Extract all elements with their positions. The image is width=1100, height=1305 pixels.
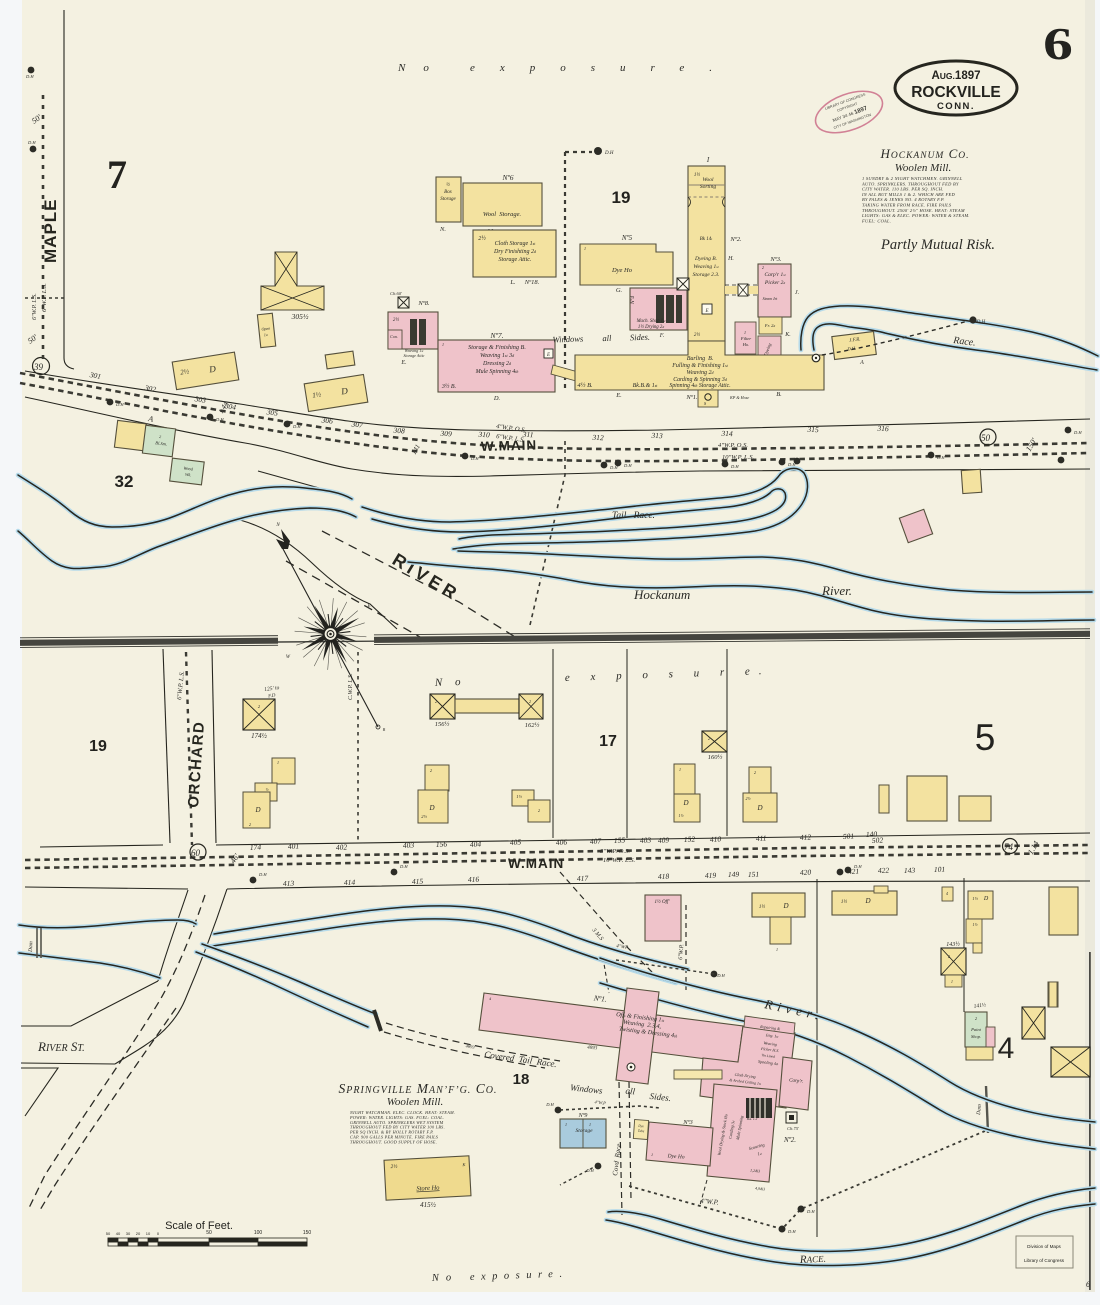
svg-text:D: D <box>682 799 688 807</box>
svg-text:Storage Attic: Storage Attic <box>404 353 425 358</box>
svg-text:3½ B.: 3½ B. <box>441 383 456 390</box>
svg-text:Storage: Storage <box>575 1128 593 1134</box>
svg-text:E: E <box>704 309 708 314</box>
svg-text:Box: Box <box>444 190 453 195</box>
svg-text:2½: 2½ <box>478 235 486 242</box>
svg-text:156½: 156½ <box>435 721 450 728</box>
svg-text:2½: 2½ <box>746 796 751 801</box>
svg-text:E: E <box>546 353 550 358</box>
svg-text:exposure.: exposure. <box>470 62 737 74</box>
svg-text:306: 306 <box>320 415 334 425</box>
svg-text:Nº8.: Nº8. <box>417 300 430 307</box>
svg-text:74: 74 <box>1004 842 1014 852</box>
svg-text:River.: River. <box>821 583 852 598</box>
svg-text:18: 18 <box>513 1071 530 1088</box>
svg-text:Nº6: Nº6 <box>501 173 513 182</box>
svg-text:TAKING WATER FROM RACE. FIRE P: TAKING WATER FROM RACE. FIRE PAILS <box>862 203 952 208</box>
svg-text:D: D <box>782 902 788 910</box>
svg-text:313: 313 <box>650 431 663 440</box>
svg-text:4"W.P. O.S.: 4"W.P. O.S. <box>718 442 748 449</box>
svg-text:Nº1.: Nº1. <box>592 993 607 1004</box>
svg-text:309: 309 <box>439 429 452 439</box>
svg-text:THROUGHOUT. 2500' 2½" HOSE. HE: THROUGHOUT. 2500' 2½" HOSE. HEAT: STEAM <box>862 208 965 213</box>
svg-text:BA. 1.2: BA. 1.2 <box>747 1117 758 1121</box>
svg-text:10: 10 <box>146 1231 151 1236</box>
svg-text:5: 5 <box>975 717 996 758</box>
svg-text:316: 316 <box>876 424 889 433</box>
svg-text:G.: G. <box>616 287 623 294</box>
svg-text:all: all <box>602 333 612 343</box>
svg-text:Spinning 4th Storage Attic.: Spinning 4th Storage Attic. <box>669 382 730 389</box>
svg-text:Picker 2d: Picker 2d <box>764 280 785 286</box>
svg-text:Nº5: Nº5 <box>621 234 633 242</box>
svg-text:50: 50 <box>106 1231 111 1236</box>
svg-text:D.H: D.H <box>545 1102 554 1107</box>
svg-text:D.H: D.H <box>936 455 945 460</box>
svg-text:418: 418 <box>658 872 670 881</box>
svg-text:D.H: D.H <box>853 864 862 869</box>
svg-text:Storage: Storage <box>440 197 456 202</box>
svg-text:B.: B. <box>776 391 782 398</box>
svg-text:2: 2 <box>538 808 540 813</box>
svg-text:Burling B.: Burling B. <box>687 356 714 362</box>
svg-text:4: 4 <box>998 1032 1015 1065</box>
svg-text:Steam Jet: Steam Jet <box>763 297 779 301</box>
svg-text:Wool: Wool <box>702 177 714 183</box>
svg-text:Woolen Mill.: Woolen Mill. <box>387 1096 443 1108</box>
svg-text:1½: 1½ <box>516 794 522 799</box>
svg-text:416: 416 <box>468 875 480 884</box>
svg-text:156: 156 <box>436 839 448 849</box>
svg-text:E.: E. <box>615 392 622 399</box>
svg-text:D.H: D.H <box>716 973 725 978</box>
svg-text:Bk.B.& 1st: Bk.B.& 1st <box>633 383 659 389</box>
svg-text:E.: E. <box>400 360 406 366</box>
svg-text:10"W.P. L.S.: 10"W.P. L.S. <box>722 454 755 461</box>
svg-text:Fr. 2d: Fr. 2d <box>764 323 776 328</box>
svg-text:Woolen Mill.: Woolen Mill. <box>895 162 951 174</box>
svg-text:Nº9: Nº9 <box>578 1113 588 1119</box>
svg-text:D.H: D.H <box>806 1209 815 1214</box>
svg-text:2: 2 <box>430 768 432 773</box>
svg-text:2: 2 <box>529 699 531 704</box>
svg-text:D: D <box>864 897 870 905</box>
svg-text:D.H: D.H <box>25 74 34 79</box>
svg-text:413: 413 <box>283 879 295 888</box>
svg-text:1: 1 <box>679 767 681 772</box>
svg-text:4½ B.: 4½ B. <box>577 382 593 389</box>
svg-text:412: 412 <box>800 832 812 842</box>
svg-text:D.H: D.H <box>115 402 124 407</box>
svg-text:D.H: D.H <box>470 456 479 461</box>
svg-text:CONN.: CONN. <box>937 101 975 112</box>
svg-text:Windows: Windows <box>552 333 584 344</box>
svg-text:Mach. Shop 1st: Mach. Shop 1st <box>636 319 667 324</box>
svg-text:Paint: Paint <box>970 1027 981 1032</box>
svg-text:Nº7.: Nº7. <box>490 331 504 340</box>
svg-text:Storage 2.3.: Storage 2.3. <box>693 272 720 278</box>
svg-text:2: 2 <box>948 954 950 959</box>
svg-text:D.H: D.H <box>215 417 224 422</box>
svg-text:100: 100 <box>254 1230 263 1236</box>
svg-text:J.: J. <box>795 290 799 296</box>
svg-text:1: 1 <box>584 246 586 251</box>
svg-text:143½: 143½ <box>946 941 960 948</box>
svg-text:1 SUNDRY & 2 NIGHT WATCHMEN. G: 1 SUNDRY & 2 NIGHT WATCHMEN. GRINNELL <box>862 176 963 181</box>
svg-text:Nº2.: Nº2. <box>783 1136 796 1144</box>
svg-text:D.H: D.H <box>1073 430 1082 435</box>
svg-text:Nº3: Nº3 <box>682 1119 693 1126</box>
svg-text:N: N <box>275 523 280 528</box>
svg-text:39: 39 <box>33 362 44 372</box>
svg-text:2: 2 <box>975 1016 977 1021</box>
svg-text:No: No <box>397 62 447 74</box>
svg-text:405: 405 <box>510 837 522 847</box>
svg-text:CITY WATER. 110 LBS. PER SQ. I: CITY WATER. 110 LBS. PER SQ. INCH. <box>862 187 944 192</box>
svg-text:D.: D. <box>493 395 501 402</box>
svg-text:415: 415 <box>412 877 424 886</box>
svg-text:N.: N. <box>439 226 446 233</box>
svg-text:Library of Congress: Library of Congress <box>1024 1258 1065 1263</box>
svg-text:420: 420 <box>800 868 812 877</box>
svg-text:Bk 14t: Bk 14t <box>700 237 714 242</box>
svg-text:1st: 1st <box>264 332 269 337</box>
svg-text:305½: 305½ <box>291 312 309 321</box>
svg-text:406: 406 <box>556 837 568 847</box>
svg-text:H.: H. <box>727 256 734 262</box>
svg-text:402: 402 <box>336 842 348 852</box>
svg-text:305: 305 <box>265 407 279 418</box>
svg-text:1½: 1½ <box>759 905 766 910</box>
svg-text:32: 32 <box>115 472 134 491</box>
svg-text:D.H: D.H <box>292 424 301 429</box>
svg-text:403: 403 <box>403 840 415 850</box>
svg-text:D: D <box>428 804 434 812</box>
svg-text:2: 2 <box>249 822 251 827</box>
svg-text:409: 409 <box>658 835 670 845</box>
svg-text:314: 314 <box>720 429 733 438</box>
svg-text:Weaving 1st: Weaving 1st <box>693 264 719 270</box>
svg-text:411: 411 <box>756 833 767 843</box>
svg-text:40: 40 <box>116 1231 121 1236</box>
svg-text:Tubs: Tubs <box>638 1129 645 1133</box>
svg-text:LIGHTS: GAS & ELEC. POWER: WAT: LIGHTS: GAS & ELEC. POWER: WATER & STEAM… <box>861 213 970 218</box>
svg-text:414: 414 <box>344 878 356 887</box>
svg-text:310: 310 <box>477 430 490 440</box>
svg-text:30: 30 <box>126 1231 131 1236</box>
svg-text:Filter: Filter <box>740 336 751 341</box>
svg-text:Dye Ho: Dye Ho <box>611 267 633 274</box>
svg-text:50: 50 <box>206 1230 212 1236</box>
svg-text:D.H: D.H <box>976 320 986 325</box>
svg-text:1½: 1½ <box>973 922 978 927</box>
svg-text:502: 502 <box>872 835 884 845</box>
svg-text:Con.: Con. <box>390 334 398 339</box>
svg-text:10"W.P. L.S.: 10"W.P. L.S. <box>603 857 636 864</box>
svg-text:Store Ho: Store Ho <box>416 1184 440 1192</box>
svg-text:D: D <box>983 896 989 902</box>
svg-text:D.H: D.H <box>258 872 267 877</box>
svg-text:8"W.P. O.S.: 8"W.P. O.S. <box>600 848 630 855</box>
svg-text:D.H: D.H <box>787 1229 796 1234</box>
svg-text:D.H: D.H <box>623 463 632 468</box>
svg-text:Mule Spinning 4th: Mule Spinning 4th <box>475 368 519 375</box>
svg-text:Nº2.: Nº2. <box>729 236 742 243</box>
svg-text:Wool Storage.: Wool Storage. <box>483 211 522 218</box>
svg-text:Ho.: Ho. <box>742 342 750 347</box>
svg-text:Dyeing B.: Dyeing B. <box>694 256 717 262</box>
svg-text:2½: 2½ <box>421 814 427 819</box>
svg-text:501: 501 <box>843 831 855 841</box>
svg-text:1½: 1½ <box>972 896 978 901</box>
svg-text:4: 4 <box>946 892 948 896</box>
svg-text:1: 1 <box>565 1122 567 1127</box>
svg-text:307: 307 <box>350 419 364 429</box>
svg-text:1: 1 <box>744 330 746 335</box>
svg-text:FUEL: COAL.: FUEL: COAL. <box>861 218 891 223</box>
svg-text:19: 19 <box>612 188 631 207</box>
svg-text:1½: 1½ <box>841 900 848 905</box>
svg-text:Sides.: Sides. <box>630 332 650 343</box>
svg-text:D.H: D.H <box>604 151 614 156</box>
svg-text:Shop.: Shop. <box>971 1034 981 1039</box>
svg-text:2½: 2½ <box>390 1163 397 1170</box>
svg-text:2½: 2½ <box>393 318 400 323</box>
svg-text:1½ Drying 2d: 1½ Drying 2d <box>638 325 664 330</box>
svg-text:1: 1 <box>277 760 279 765</box>
svg-text:407: 407 <box>590 836 602 846</box>
svg-text:2: 2 <box>708 736 710 741</box>
svg-text:D.H: D.H <box>609 465 618 470</box>
svg-text:Wk.: Wk. <box>185 472 192 478</box>
svg-text:Scale of Feet.: Scale of Feet. <box>165 1220 233 1232</box>
svg-text:BY FALES & JENKS NO. 4 ROTARY: BY FALES & JENKS NO. 4 ROTARY F.P. <box>862 197 945 202</box>
svg-text:315: 315 <box>806 425 819 434</box>
svg-text:2½: 2½ <box>694 333 701 338</box>
svg-text:155: 155 <box>614 835 626 845</box>
svg-text:101: 101 <box>934 865 946 874</box>
svg-text:Nº3.: Nº3. <box>769 256 782 263</box>
svg-text:404: 404 <box>470 839 482 849</box>
svg-text:K.: K. <box>784 332 791 338</box>
svg-text:2: 2 <box>762 266 764 270</box>
svg-text:20: 20 <box>136 1231 141 1236</box>
svg-text:174: 174 <box>250 842 262 852</box>
svg-text:Partly Mutual Risk.: Partly Mutual Risk. <box>880 237 995 253</box>
svg-text:E: E <box>366 604 370 609</box>
svg-text:50: 50 <box>981 433 991 443</box>
svg-text:150: 150 <box>303 1230 312 1236</box>
svg-text:174½: 174½ <box>251 732 268 740</box>
svg-text:Nº4: Nº4 <box>629 296 636 305</box>
svg-text:Division of Maps: Division of Maps <box>1027 1244 1061 1249</box>
svg-text:Ch.75': Ch.75' <box>787 1126 800 1131</box>
svg-text:½: ½ <box>446 183 450 188</box>
svg-text:Nº18.: Nº18. <box>524 279 540 286</box>
svg-text:Hockanum: Hockanum <box>633 587 690 602</box>
svg-text:4"W.P.: 4"W.P. <box>700 1197 719 1207</box>
svg-text:AUG.1897: AUG.1897 <box>931 70 980 82</box>
svg-text:17: 17 <box>599 733 617 750</box>
svg-text:ROCKVILLE: ROCKVILLE <box>911 84 1001 101</box>
svg-text:D.H: D.H <box>585 1168 594 1173</box>
svg-text:D: D <box>254 806 260 814</box>
svg-text:IN ALL BUT MILLS 1 & 2. WHICH: IN ALL BUT MILLS 1 & 2. WHICH ARE FED <box>861 192 956 197</box>
svg-text:all: all <box>625 1086 636 1097</box>
svg-text:401: 401 <box>288 841 300 851</box>
svg-text:2: 2 <box>435 699 437 704</box>
svg-text:2: 2 <box>754 770 756 775</box>
svg-text:422: 422 <box>878 866 890 875</box>
svg-text:410: 410 <box>710 834 722 844</box>
svg-text:Weaving 1st 3d: Weaving 1st 3d <box>480 353 515 359</box>
svg-text:160½: 160½ <box>708 754 723 761</box>
svg-text:312: 312 <box>591 433 604 442</box>
svg-text:1½: 1½ <box>679 813 684 818</box>
svg-text:1½: 1½ <box>694 173 701 178</box>
svg-text:60: 60 <box>191 848 201 858</box>
svg-text:152: 152 <box>684 834 696 844</box>
svg-text:1½ Off': 1½ Off' <box>655 900 671 905</box>
svg-text:L.: L. <box>509 279 516 286</box>
svg-text:Sorting: Sorting <box>700 184 716 190</box>
svg-text:149: 149 <box>728 870 740 879</box>
svg-text:MAPLE: MAPLE <box>41 199 60 264</box>
svg-text:AUTO. SPRINKLERS. THROUGHOUT F: AUTO. SPRINKLERS. THROUGHOUT FED BY <box>861 181 959 186</box>
svg-text:D.H: D.H <box>27 140 36 145</box>
svg-text:Fulling & Finishing 1st: Fulling & Finishing 1st <box>671 363 728 369</box>
svg-text:Nº1.: Nº1. <box>685 394 698 401</box>
svg-text:A: A <box>859 360 864 366</box>
svg-text:415½: 415½ <box>420 1201 437 1209</box>
svg-text:Open: Open <box>261 326 270 332</box>
svg-text:Dye: Dye <box>637 1124 644 1128</box>
svg-text:Cloth Storage 1st: Cloth Storage 1st <box>495 241 537 247</box>
svg-text:Dam: Dam <box>976 1104 983 1116</box>
svg-text:1: 1 <box>442 342 444 347</box>
svg-text:Dye Ho: Dye Ho <box>666 1153 685 1160</box>
svg-text:6: 6 <box>1086 1280 1090 1289</box>
svg-text:19: 19 <box>89 738 107 755</box>
svg-text:F.: F. <box>659 333 664 339</box>
svg-text:Dam: Dam <box>28 941 34 953</box>
svg-text:417: 417 <box>577 874 589 883</box>
svg-text:162½: 162½ <box>525 722 540 729</box>
svg-text:W.MAIN: W.MAIN <box>508 856 564 871</box>
svg-text:1: 1 <box>951 980 953 984</box>
svg-text:No: No <box>431 1272 459 1284</box>
svg-text:1: 1 <box>589 1122 591 1127</box>
svg-text:6"W.P. L.S.: 6"W.P. L.S. <box>32 293 38 320</box>
svg-text:Storage Attic.: Storage Attic. <box>499 257 532 263</box>
svg-text:D.H: D.H <box>730 464 739 469</box>
svg-text:419: 419 <box>705 871 717 880</box>
svg-text:N o: N o <box>434 676 466 689</box>
svg-text:KP & Hose: KP & Hose <box>729 395 749 400</box>
svg-text:311: 311 <box>522 430 534 440</box>
svg-text:1: 1 <box>651 1152 653 1157</box>
svg-text:Tail Race.: Tail Race. <box>612 511 655 521</box>
svg-text:Dressing 2d: Dressing 2d <box>482 361 512 367</box>
svg-text:THROUGHOUT. GOOD SUPPLY OF HOS: THROUGHOUT. GOOD SUPPLY OF HOSE. <box>350 1139 437 1144</box>
svg-text:D.H: D.H <box>399 864 408 869</box>
svg-text:151: 151 <box>748 870 760 879</box>
svg-text:D: D <box>756 804 762 812</box>
svg-text:308: 308 <box>392 425 405 435</box>
svg-text:143: 143 <box>904 866 916 875</box>
svg-text:6: 6 <box>1043 20 1073 70</box>
svg-text:403: 403 <box>640 835 652 845</box>
svg-text:7: 7 <box>107 152 127 197</box>
svg-text:Weaving 2d: Weaving 2d <box>687 370 715 376</box>
svg-text:½: ½ <box>266 787 269 792</box>
svg-text:Storage & Finishing B.: Storage & Finishing B. <box>468 344 526 351</box>
svg-text:Ch.60': Ch.60' <box>390 291 403 296</box>
svg-text:Dry Finishting 2d: Dry Finishting 2d <box>493 249 537 255</box>
svg-text:1: 1 <box>776 947 778 952</box>
